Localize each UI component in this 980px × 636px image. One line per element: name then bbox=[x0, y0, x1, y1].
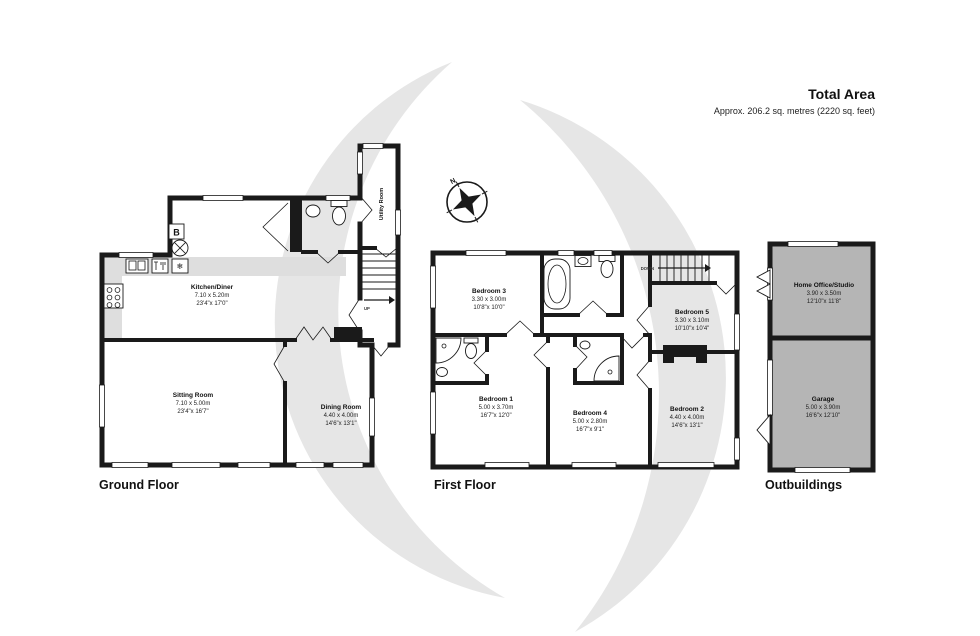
door bbox=[715, 283, 737, 294]
room-label-bedroom1: Bedroom 1 bbox=[479, 396, 513, 403]
window bbox=[735, 438, 740, 460]
sink-icon bbox=[437, 368, 448, 377]
window bbox=[558, 251, 574, 256]
boiler-label: B bbox=[173, 228, 180, 238]
window bbox=[466, 251, 506, 256]
window bbox=[594, 251, 612, 256]
double-door bbox=[757, 284, 770, 298]
double-door bbox=[757, 270, 770, 284]
room-dim: 16'7"x 9'1" bbox=[576, 427, 604, 433]
stairs-up: UP bbox=[362, 254, 396, 311]
room-dim: 23'4"x 16'7" bbox=[177, 409, 208, 415]
door-opening bbox=[768, 360, 773, 415]
total-area-title: Total Area bbox=[808, 86, 875, 102]
fireplace-foot bbox=[663, 357, 674, 363]
door bbox=[578, 301, 608, 315]
door bbox=[534, 341, 548, 369]
room-label-bedroom5: Bedroom 5 bbox=[675, 309, 709, 316]
room-dim: 16'7"x 12'0" bbox=[480, 413, 511, 419]
total-area-value: Approx. 206.2 sq. metres (2220 sq. feet) bbox=[714, 106, 875, 116]
ensuite1-fixtures bbox=[436, 338, 478, 377]
room-dim: 5.00 x 3.90m bbox=[806, 405, 841, 411]
room-dim: 10'8"x 10'0" bbox=[473, 305, 504, 311]
window bbox=[795, 468, 850, 473]
door bbox=[505, 321, 535, 335]
window bbox=[326, 196, 350, 201]
window bbox=[203, 196, 243, 201]
door bbox=[637, 305, 650, 335]
front-door bbox=[372, 345, 390, 356]
door bbox=[375, 248, 397, 257]
window bbox=[485, 463, 529, 468]
outbuilding-walls bbox=[770, 244, 873, 470]
window bbox=[358, 152, 363, 174]
room-dim: 12'10"x 11'8" bbox=[807, 299, 841, 305]
toilet-cistern bbox=[331, 201, 347, 207]
window bbox=[431, 266, 436, 308]
compass: N bbox=[436, 171, 498, 233]
sink-icon bbox=[580, 341, 590, 349]
compass-star-icon bbox=[436, 171, 498, 233]
watermark-logo bbox=[275, 62, 726, 632]
room-dim: 4.40 x 4.00m bbox=[324, 413, 359, 419]
snowflake-icon: ❄ bbox=[177, 262, 184, 271]
window bbox=[238, 463, 270, 468]
first-floor-label: First Floor bbox=[434, 478, 496, 492]
double-door bbox=[263, 203, 288, 251]
dishwasher-icon bbox=[152, 259, 168, 273]
fireplace-foot bbox=[696, 357, 707, 363]
room-dim: 3.90 x 3.50m bbox=[807, 291, 842, 297]
window bbox=[100, 385, 105, 427]
room-dim: 23'4"x 17'0" bbox=[196, 301, 227, 307]
shower-icon bbox=[436, 338, 461, 363]
window bbox=[431, 392, 436, 434]
toilet-icon bbox=[466, 344, 477, 359]
room-label-garage: Garage bbox=[812, 396, 835, 403]
header: Total Area Approx. 206.2 sq. metres (222… bbox=[714, 86, 875, 116]
floorplan-image: Total Area Approx. 206.2 sq. metres (222… bbox=[0, 0, 980, 636]
room-label-sitting: Sitting Room bbox=[173, 392, 214, 399]
outbuildings-label: Outbuildings bbox=[765, 478, 842, 492]
door bbox=[757, 415, 770, 445]
window bbox=[788, 242, 838, 247]
shower-icon bbox=[594, 356, 619, 381]
wc-wall-chunk bbox=[290, 198, 302, 252]
bathroom-fixtures bbox=[544, 256, 615, 310]
window bbox=[572, 463, 616, 468]
room-label-office: Home Office/Studio bbox=[794, 282, 854, 289]
room-label-utility: Utility Room bbox=[379, 188, 385, 220]
door bbox=[349, 298, 360, 332]
toilet-icon bbox=[601, 261, 613, 278]
watermark-left-crescent bbox=[275, 62, 505, 598]
stairs-direction-label: DOWN bbox=[641, 266, 654, 271]
window bbox=[370, 398, 375, 436]
stairs-arrow bbox=[705, 264, 711, 272]
room-dim: 14'6"x 13'1" bbox=[325, 421, 356, 427]
room-dim: 4.40 x 4.00m bbox=[670, 415, 705, 421]
window bbox=[296, 463, 324, 468]
window bbox=[119, 253, 153, 258]
room-dim: 7.10 x 5.00m bbox=[176, 401, 211, 407]
window bbox=[363, 144, 383, 149]
door bbox=[637, 360, 650, 390]
room-dim: 5.00 x 2.80m bbox=[573, 419, 608, 425]
toilet-cistern bbox=[464, 338, 478, 343]
room-label-bedroom2: Bedroom 2 bbox=[670, 406, 704, 413]
window bbox=[112, 463, 148, 468]
stairs-direction-label: UP bbox=[364, 306, 370, 311]
window bbox=[396, 210, 401, 235]
stairs-arrow bbox=[389, 296, 395, 304]
room-label-dining: Dining Room bbox=[321, 404, 362, 411]
window bbox=[333, 463, 363, 468]
toilet-icon bbox=[333, 207, 346, 225]
room-dim: 3.30 x 3.10m bbox=[675, 318, 710, 324]
ground-floor-label: Ground Floor bbox=[99, 478, 179, 492]
room-dim: 7.10 x 5.20m bbox=[195, 293, 230, 299]
window bbox=[735, 314, 740, 350]
room-dim: 5.00 x 3.70m bbox=[479, 405, 514, 411]
window bbox=[172, 463, 220, 468]
fireplace-icon bbox=[663, 345, 707, 357]
room-dim: 16'6"x 12'10" bbox=[806, 413, 841, 419]
window bbox=[658, 463, 714, 468]
room-label-kitchen: Kitchen/Diner bbox=[191, 284, 234, 291]
outbuildings-plan: Home Office/Studio 3.90 x 3.50m 12'10"x … bbox=[757, 242, 873, 493]
ensuite2-fixtures bbox=[580, 341, 619, 381]
sink-icon bbox=[306, 205, 320, 217]
room-label-bedroom4: Bedroom 4 bbox=[573, 410, 607, 417]
room-dim: 10'10"x 10'4" bbox=[675, 326, 710, 332]
room-dim: 14'6"x 13'1" bbox=[671, 423, 702, 429]
room-dim: 3.30 x 3.00m bbox=[472, 297, 507, 303]
room-label-bedroom3: Bedroom 3 bbox=[472, 288, 506, 295]
